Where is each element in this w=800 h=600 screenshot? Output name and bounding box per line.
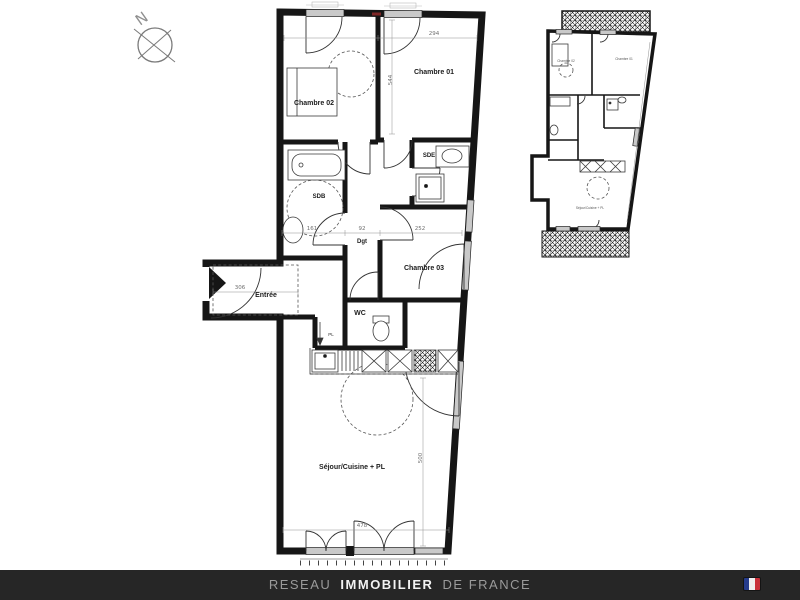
mini-floor-plan: Chambre 02 Chambre 01 Séjour/Cuisine + P… <box>532 11 655 257</box>
sink <box>283 217 303 243</box>
main-floor-plan: 294 544 161 92 252 306 478 500 Chambre 0… <box>200 2 482 563</box>
appliance <box>414 350 436 372</box>
compass-cross-icon <box>134 29 175 62</box>
room-label-entree: Entrée <box>255 292 277 299</box>
window-chambre02 <box>306 10 344 17</box>
wall-marker <box>372 13 381 16</box>
dim-sejour-width: 478 <box>357 523 368 529</box>
bed <box>287 68 337 116</box>
mini-room-label-sejour: Séjour/Cuisine + PL <box>576 206 604 210</box>
mini-room-label-chambre01: Chambre 01 <box>615 57 633 61</box>
compass: N <box>132 8 175 62</box>
room-label-dgt: Dgt <box>357 239 367 245</box>
room-label-wc: WC <box>354 310 366 317</box>
dim-bedroom1-height: 544 <box>388 74 394 85</box>
window-chambre01 <box>384 11 422 18</box>
mini-terrace <box>542 231 629 257</box>
brand-text: RESEAU IMMOBILIER DE FRANCE <box>0 570 800 600</box>
floor-plan-canvas: N <box>0 0 800 570</box>
dim-chambre03-width: 252 <box>415 226 426 232</box>
dim-dgt-width: 92 <box>359 226 366 232</box>
mini-balcony <box>562 11 650 32</box>
room-label-chambre02: Chambre 02 <box>294 100 334 107</box>
room-label-chambre03: Chambre 03 <box>404 265 444 272</box>
compass-north-label: N <box>132 8 152 29</box>
mini-room-label-chambre02: Chambre 02 <box>557 59 575 63</box>
dim-bedrooms-width: 294 <box>429 31 440 37</box>
dim-sejour-height: 500 <box>418 452 424 463</box>
room-label-sdb: SDB <box>313 194 326 200</box>
room-label-sde: SDE <box>423 153 435 159</box>
dim-entree-length: 306 <box>235 285 246 291</box>
room-label-chambre01: Chambre 01 <box>414 69 454 76</box>
room-label-sejour: Séjour/Cuisine + PL <box>319 464 386 471</box>
window-sejour-south3 <box>415 548 443 554</box>
closet-label-pl: PL <box>328 332 334 337</box>
france-flag-icon <box>744 578 760 590</box>
footer-bar: RESEAU IMMOBILIER DE FRANCE <box>0 570 800 600</box>
brand-prefix: RESEAU <box>269 577 331 592</box>
brand-suffix: DE FRANCE <box>443 577 532 592</box>
wall-pier <box>346 546 354 556</box>
brand-main: IMMOBILIER <box>340 577 433 592</box>
dim-sdb-width: 161 <box>307 226 318 232</box>
